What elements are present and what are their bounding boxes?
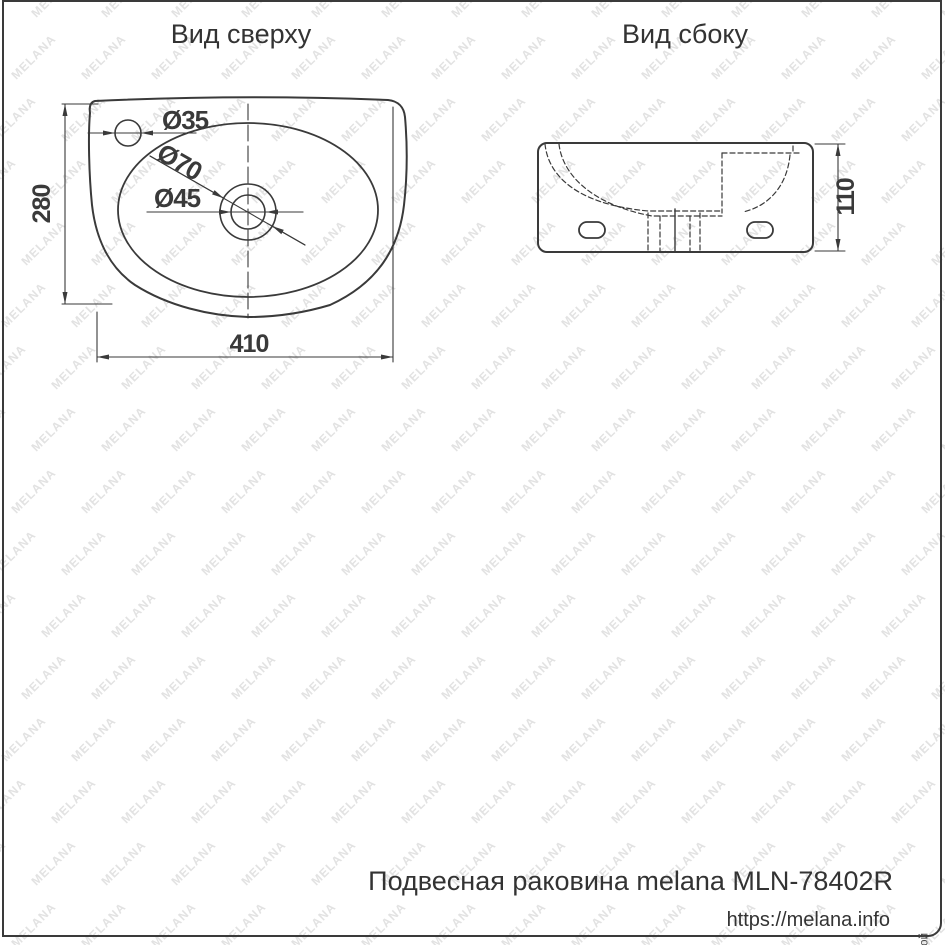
- disclaimer-vertical-text: Этот документ не является публичной офер…: [918, 933, 930, 945]
- side-view-drawing: [538, 143, 845, 252]
- top-view-drawing: [62, 97, 407, 362]
- label-drain-outer-diameter: Ø70: [152, 137, 207, 186]
- dimension-width-410: [97, 107, 393, 362]
- label-width-410: 410: [230, 330, 269, 358]
- mounting-hole-right: [747, 222, 773, 238]
- top-view-title: Вид сверху: [121, 19, 361, 50]
- dimension-depth-280: [62, 104, 112, 304]
- side-view-title: Вид сбоку: [565, 19, 805, 50]
- label-depth-280: 280: [28, 185, 56, 224]
- basin-profile-hidden: [545, 144, 800, 251]
- label-faucet-hole-diameter: Ø35: [162, 105, 209, 135]
- product-name-label: Подвесная раковина melana MLN-78402R: [368, 866, 893, 897]
- drawing-sheet: MELANAMELANAMELANAMELANAMELANAMELANAMELA…: [0, 0, 945, 945]
- label-height-110: 110: [832, 178, 860, 215]
- technical-drawing: Ø35 Ø45 Ø70 280 410 110: [0, 0, 945, 945]
- mounting-hole-left: [579, 222, 605, 238]
- label-drain-inner-diameter: Ø45: [154, 183, 201, 213]
- site-url-text: https://melana.info: [727, 909, 890, 932]
